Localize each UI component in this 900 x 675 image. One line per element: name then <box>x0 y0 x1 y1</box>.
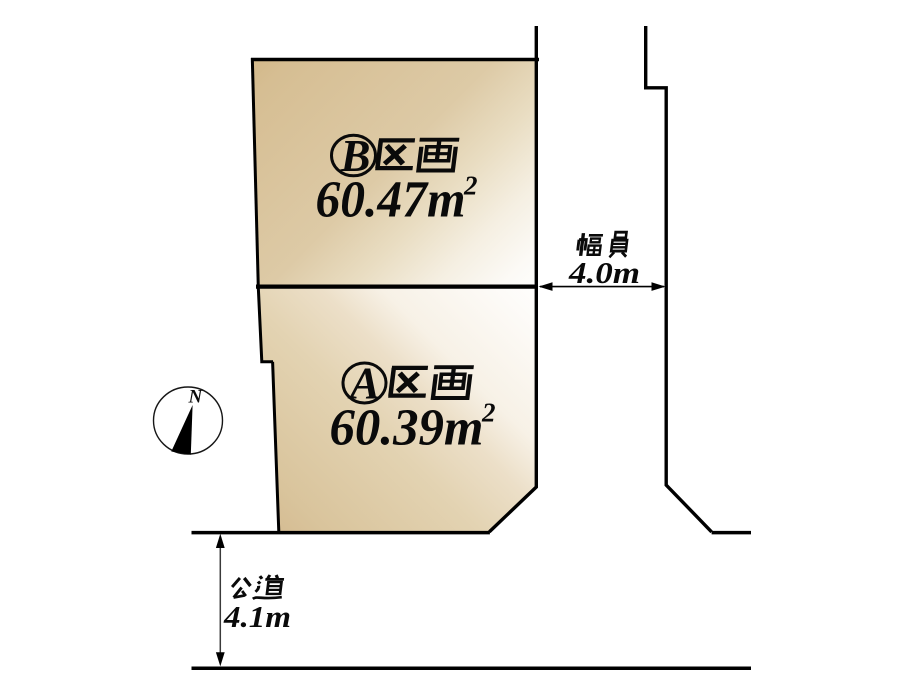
svg-text:4.1m: 4.1m <box>223 599 291 634</box>
svg-text:N: N <box>188 387 204 408</box>
svg-text:4.0m: 4.0m <box>568 255 640 290</box>
svg-text:2: 2 <box>481 398 496 428</box>
svg-text:2: 2 <box>463 171 478 201</box>
svg-text:60.47m: 60.47m <box>316 171 466 228</box>
svg-text:60.39m: 60.39m <box>330 399 484 456</box>
